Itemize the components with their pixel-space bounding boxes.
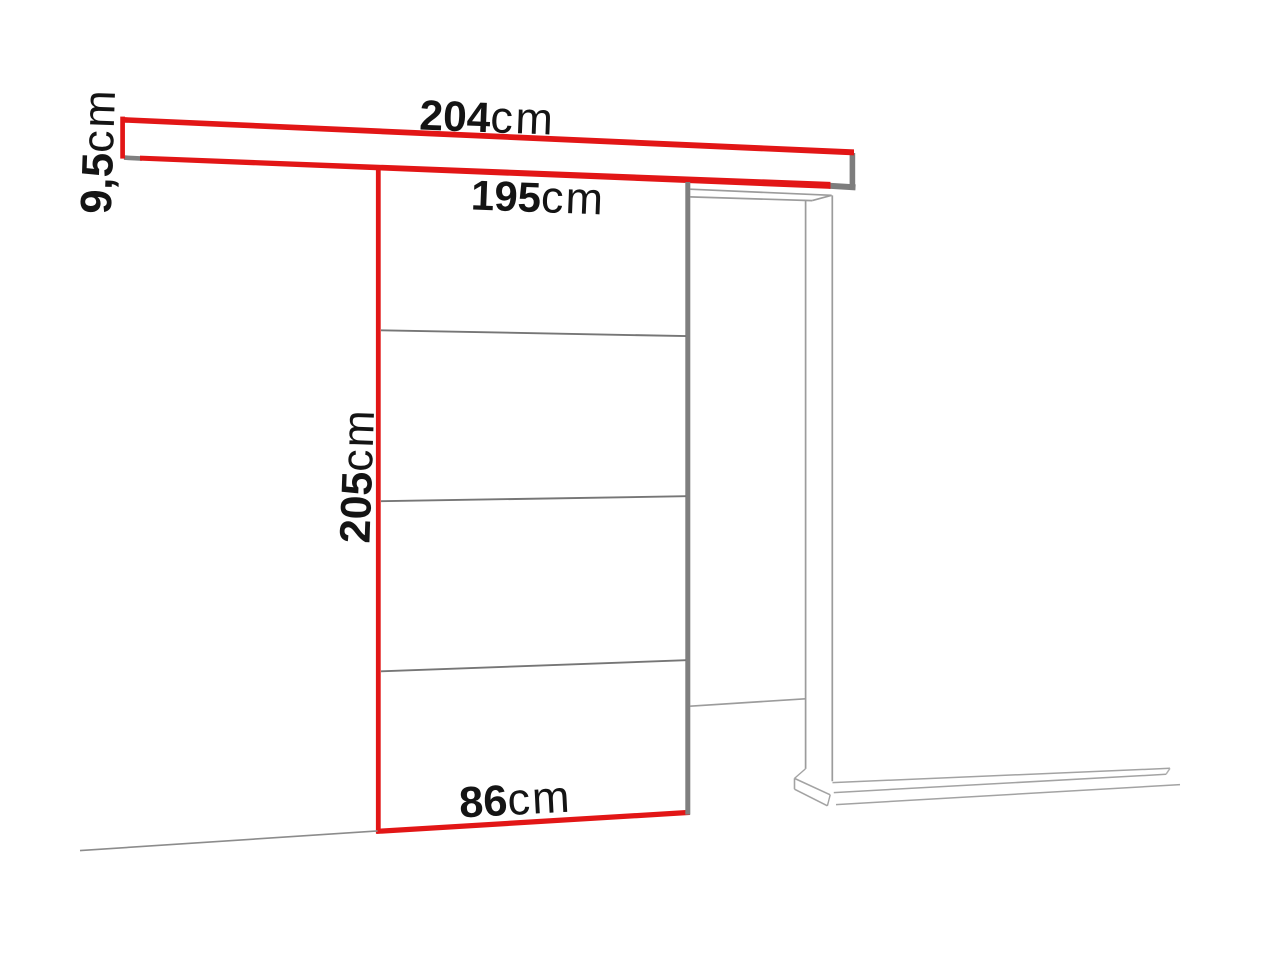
svg-text:86cm: 86cm [458,771,573,828]
svg-text:195cm: 195cm [470,168,606,224]
svg-text:204cm: 204cm [419,89,557,145]
svg-text:205cm: 205cm [330,407,384,544]
svg-text:9,5cm: 9,5cm [70,87,125,215]
